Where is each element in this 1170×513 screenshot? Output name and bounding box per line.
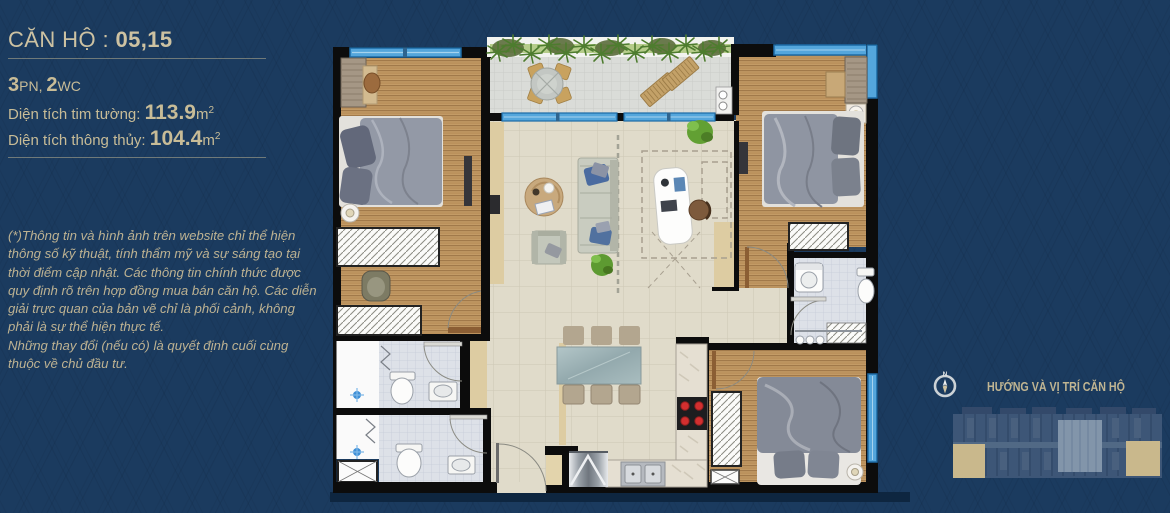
svg-text:N: N [943,371,948,378]
